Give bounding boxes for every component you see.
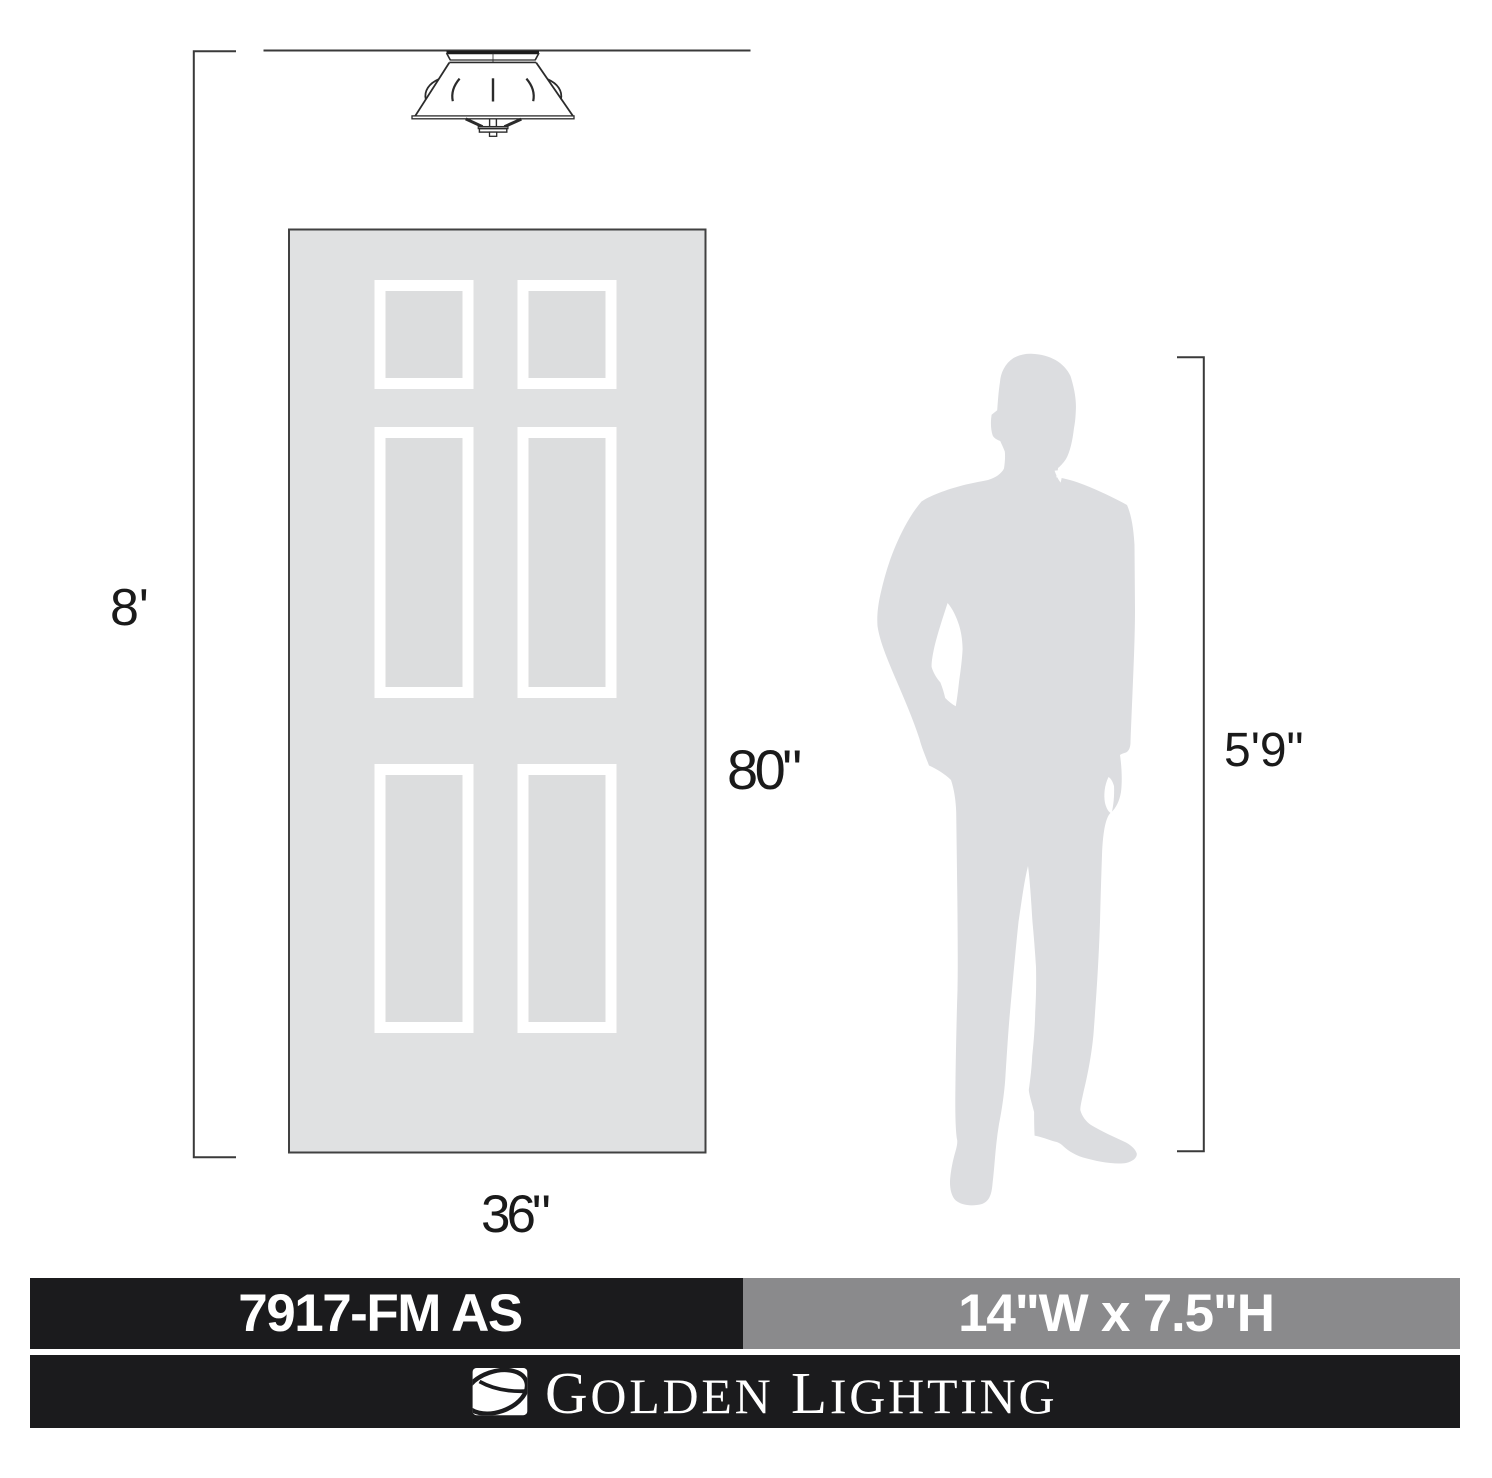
svg-text:36": 36" bbox=[481, 1185, 549, 1244]
svg-text:5'9": 5'9" bbox=[1224, 724, 1304, 777]
svg-text:14"W x 7.5"H: 14"W x 7.5"H bbox=[958, 1284, 1274, 1343]
svg-text:80": 80" bbox=[727, 738, 800, 801]
svg-text:8': 8' bbox=[110, 579, 149, 637]
svg-text:GOLDEN LIGHTING: GOLDEN LIGHTING bbox=[545, 1360, 1057, 1426]
svg-text:7917-FM AS: 7917-FM AS bbox=[238, 1284, 522, 1343]
